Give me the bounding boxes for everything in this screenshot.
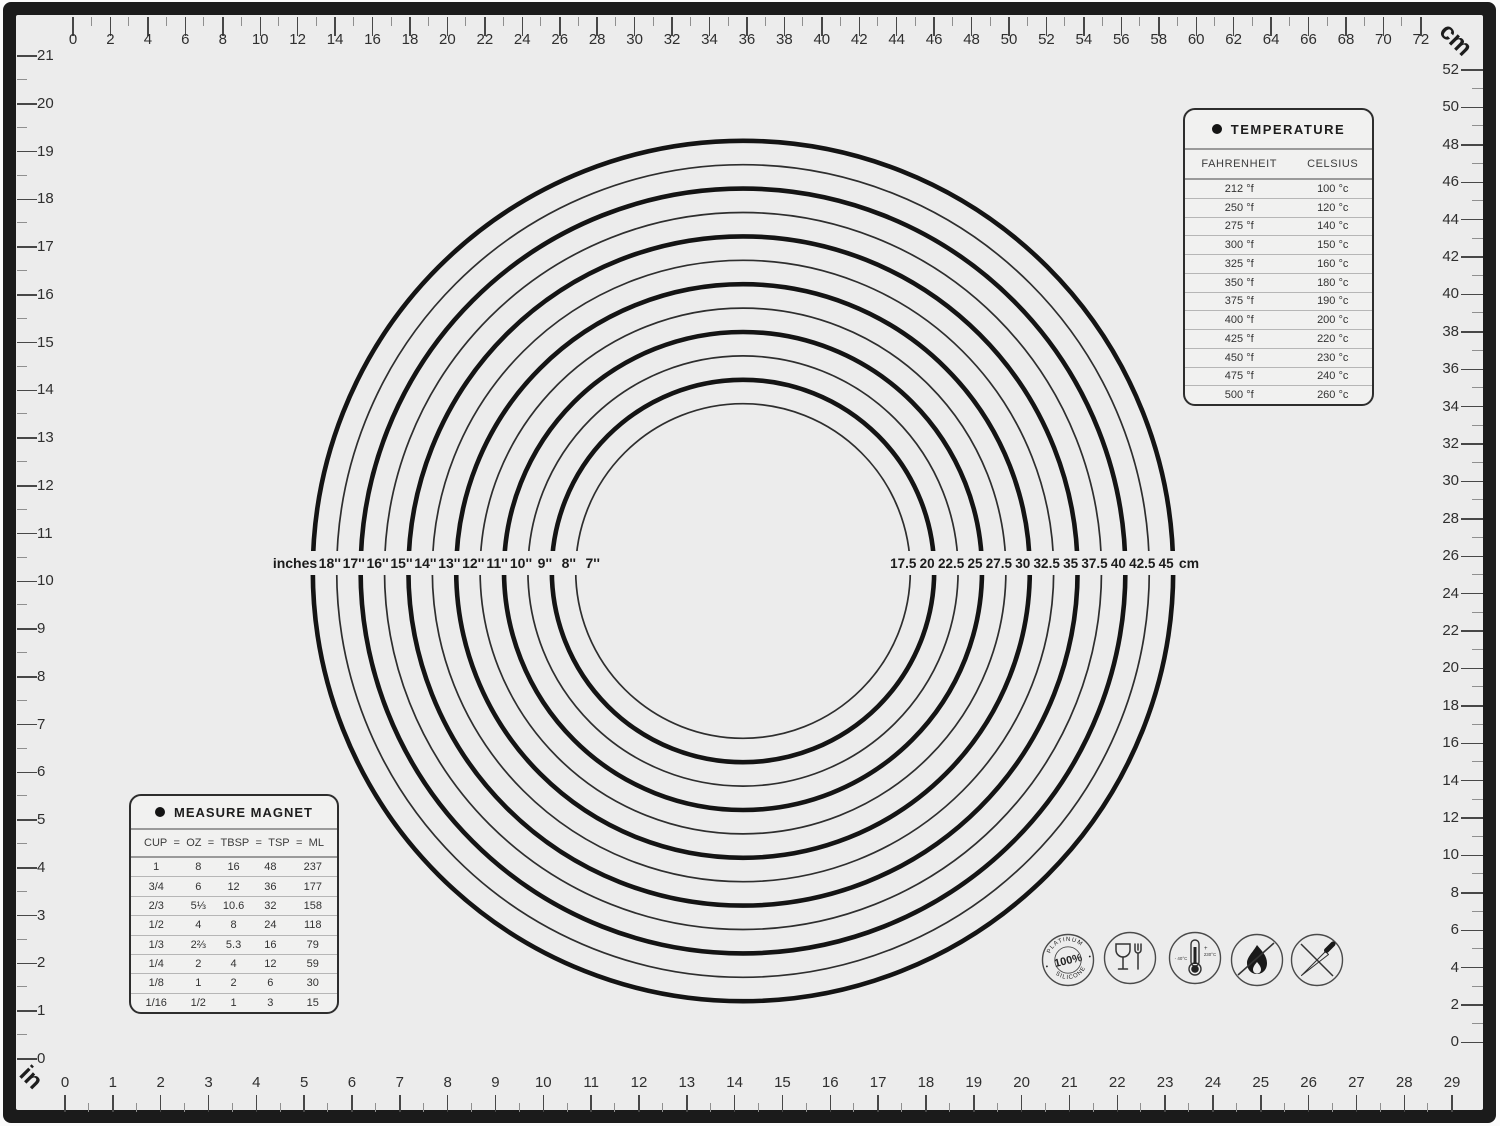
ruler-tick bbox=[17, 294, 37, 296]
ruler-tick-label: 7 bbox=[37, 716, 45, 733]
ruler-tick bbox=[17, 318, 27, 319]
ruler-tick bbox=[1472, 425, 1483, 426]
table-cell: 10.6 bbox=[215, 900, 252, 912]
ruler-tick bbox=[997, 1103, 998, 1112]
ruler-tick bbox=[17, 1058, 37, 1060]
table-cell: 12 bbox=[252, 958, 288, 970]
ruler-tick-label: 48 bbox=[1423, 136, 1459, 153]
ruler-tick bbox=[686, 1095, 688, 1112]
ruler-tick-label: 18 bbox=[918, 1074, 935, 1091]
ring-inch-label: 8'' bbox=[562, 555, 576, 571]
table-cell: 2 bbox=[215, 977, 252, 989]
ruler-tick-label: 72 bbox=[1412, 31, 1429, 48]
ruler-tick-label: 26 bbox=[1300, 1074, 1317, 1091]
ruler-tick-label: 42 bbox=[1423, 248, 1459, 265]
ruler-tick bbox=[614, 1103, 615, 1112]
ruler-tick-label: 28 bbox=[589, 31, 606, 48]
ring-cm-label: 32.5 bbox=[1034, 556, 1061, 571]
ruler-tick bbox=[17, 867, 37, 869]
ruler-tick-label: 22 bbox=[1109, 1074, 1126, 1091]
ruler-tick bbox=[17, 724, 37, 726]
ruler-tick-label: 23 bbox=[1157, 1074, 1174, 1091]
ruler-tick bbox=[1472, 1023, 1483, 1024]
ruler-tick-label: 9 bbox=[37, 620, 45, 637]
ring-inch-label: 11'' bbox=[486, 555, 507, 571]
ruler-tick bbox=[1427, 1103, 1428, 1112]
ruler-tick-label: 20 bbox=[439, 31, 456, 48]
table-cell: 150 °c bbox=[1293, 239, 1372, 251]
ruler-tick bbox=[351, 1095, 353, 1112]
ruler-tick bbox=[17, 843, 27, 844]
ruler-tick-label: 8 bbox=[37, 668, 45, 685]
ruler-tick bbox=[734, 1095, 736, 1112]
ruler-tick bbox=[1472, 163, 1483, 164]
ruler-tick bbox=[17, 891, 27, 892]
ruler-tick bbox=[1472, 387, 1483, 388]
ruler-tick bbox=[1461, 1004, 1483, 1006]
ruler-tick bbox=[1461, 1042, 1483, 1044]
table-cell: 2 bbox=[181, 958, 215, 970]
ruler-tick-label: 2 bbox=[1423, 996, 1459, 1013]
ruler-tick bbox=[1177, 17, 1178, 26]
ring-axis-label-inches: inches bbox=[273, 555, 318, 571]
ruler-tick bbox=[540, 17, 541, 26]
bullet-icon bbox=[155, 807, 165, 817]
ruler-tick-label: 8 bbox=[1423, 884, 1459, 901]
ruler-tick bbox=[160, 1095, 162, 1112]
ruler-tick-label: 21 bbox=[37, 47, 54, 64]
table-row: 300 °f150 °c bbox=[1185, 235, 1372, 254]
ruler-tick bbox=[17, 652, 27, 653]
table-cell: 2⅔ bbox=[181, 939, 215, 951]
ruler-tick bbox=[653, 17, 654, 26]
ruler-tick bbox=[1260, 1095, 1262, 1112]
ruler-tick bbox=[17, 199, 37, 201]
ruler-tick bbox=[1212, 1095, 1214, 1112]
table-row: 212 °f100 °c bbox=[1185, 180, 1372, 198]
ruler-tick-label: 50 bbox=[1423, 98, 1459, 115]
table-cell: 15 bbox=[289, 997, 337, 1009]
table-cell: 177 bbox=[289, 881, 337, 893]
table-cell: 160 °c bbox=[1293, 258, 1372, 270]
ruler-tick-label: 44 bbox=[888, 31, 905, 48]
table-cell: 1/16 bbox=[131, 997, 181, 1009]
ruler-tick bbox=[1461, 443, 1483, 445]
ruler-tick bbox=[1461, 518, 1483, 520]
ruler-tick-label: 5 bbox=[37, 811, 45, 828]
table-row: 1/4241259 bbox=[131, 954, 337, 973]
ring-cm-label: 40 bbox=[1111, 556, 1126, 571]
table-row: 500 °f260 °c bbox=[1185, 385, 1372, 404]
table-cell: 400 °f bbox=[1185, 314, 1293, 326]
ruler-tick bbox=[1284, 1103, 1285, 1112]
table-cell: 260 °c bbox=[1293, 389, 1372, 401]
ruler-tick-label: 2 bbox=[156, 1074, 164, 1091]
ruler-tick bbox=[1102, 17, 1103, 26]
ruler-tick bbox=[802, 17, 803, 26]
table-cell: 1 bbox=[215, 997, 252, 1009]
table-row: 475 °f240 °c bbox=[1185, 367, 1372, 386]
ruler-tick bbox=[1332, 1103, 1333, 1112]
table-cell: 275 °f bbox=[1185, 220, 1293, 232]
ruler-tick bbox=[578, 17, 579, 26]
ruler-tick bbox=[17, 939, 27, 940]
measure-column-header: CUP bbox=[144, 837, 167, 849]
ruler-tick-label: 15 bbox=[37, 334, 54, 351]
ruler-tick bbox=[17, 270, 27, 271]
table-row: 275 °f140 °c bbox=[1185, 217, 1372, 236]
platinum-silicone-badge-icon: PLATINUM SILICONE 100% bbox=[1040, 932, 1096, 988]
ruler-tick bbox=[615, 17, 616, 26]
celsius-column-header: CELSIUS bbox=[1293, 158, 1372, 170]
ruler-tick bbox=[1451, 1095, 1453, 1112]
ruler-tick-label: 32 bbox=[1423, 435, 1459, 452]
ruler-tick-label: 12 bbox=[37, 477, 54, 494]
table-cell: 118 bbox=[289, 919, 337, 931]
ruler-tick-label: 40 bbox=[1423, 285, 1459, 302]
ruler-tick bbox=[1364, 17, 1365, 26]
ruler-tick bbox=[1472, 312, 1483, 313]
ruler-tick-label: 6 bbox=[348, 1074, 356, 1091]
ruler-tick-label: 10 bbox=[1423, 846, 1459, 863]
ruler-tick-label: 26 bbox=[551, 31, 568, 48]
ruler-tick-label: 7 bbox=[396, 1074, 404, 1091]
ruler-tick bbox=[877, 1095, 879, 1112]
table-cell: 3/4 bbox=[131, 881, 181, 893]
ruler-tick-label: 32 bbox=[664, 31, 681, 48]
ruler-tick-label: 26 bbox=[1423, 547, 1459, 564]
ring-inch-label: 13'' bbox=[438, 555, 460, 571]
ruler-tick-label: 30 bbox=[1423, 472, 1459, 489]
ruler-tick bbox=[1472, 873, 1483, 874]
ring-cm-label: 20 bbox=[920, 556, 935, 571]
ruler-tick bbox=[1461, 294, 1483, 296]
ruler-tick bbox=[184, 1103, 185, 1112]
ruler-tick bbox=[1308, 1095, 1310, 1112]
table-cell: 8 bbox=[181, 861, 215, 873]
ring-inch-label: 18'' bbox=[319, 555, 341, 571]
ruler-tick bbox=[806, 1103, 807, 1112]
ruler-tick-label: 4 bbox=[1423, 959, 1459, 976]
ruler-tick-label: 36 bbox=[1423, 360, 1459, 377]
table-cell: 1/8 bbox=[131, 977, 181, 989]
equals-separator: = bbox=[208, 837, 214, 849]
ruler-tick bbox=[203, 17, 204, 26]
table-cell: 237 bbox=[289, 861, 337, 873]
ruler-tick bbox=[1327, 17, 1328, 26]
table-cell: 24 bbox=[252, 919, 288, 931]
ruler-tick bbox=[208, 1095, 210, 1112]
ruler-tick-label: 8 bbox=[443, 1074, 451, 1091]
ruler-tick bbox=[280, 1103, 281, 1112]
ruler-tick-label: 14 bbox=[1423, 772, 1459, 789]
ruler-tick-label: 9 bbox=[491, 1074, 499, 1091]
ruler-tick bbox=[519, 1103, 520, 1112]
ruler-tick bbox=[17, 1010, 37, 1012]
ruler-tick-label: 28 bbox=[1423, 510, 1459, 527]
ruler-tick-label: 16 bbox=[364, 31, 381, 48]
table-row: 250 °f120 °c bbox=[1185, 198, 1372, 217]
table-cell: 120 °c bbox=[1293, 202, 1372, 214]
ruler-tick-label: 0 bbox=[61, 1074, 69, 1091]
ruler-tick-label: 8 bbox=[219, 31, 227, 48]
table-row: 425 °f220 °c bbox=[1185, 329, 1372, 348]
ruler-tick bbox=[1472, 238, 1483, 239]
ruler-tick bbox=[1139, 17, 1140, 26]
ruler-tick bbox=[303, 1095, 305, 1112]
ruler-tick bbox=[1461, 705, 1483, 707]
bullet-icon bbox=[1212, 124, 1222, 134]
table-row: 2/35⅓10.632158 bbox=[131, 896, 337, 915]
ruler-tick bbox=[136, 1103, 137, 1112]
ring-inch-label: 16'' bbox=[366, 555, 388, 571]
ruler-tick-label: 40 bbox=[813, 31, 830, 48]
ruler-tick bbox=[662, 1103, 663, 1112]
table-cell: 200 °c bbox=[1293, 314, 1372, 326]
ring-inch-label: 15'' bbox=[390, 555, 412, 571]
ruler-tick bbox=[1472, 350, 1483, 351]
ruler-tick-label: 17 bbox=[37, 238, 54, 255]
temp-max-text: 230°C bbox=[1204, 952, 1216, 957]
ring-cm-label: 17.5 bbox=[890, 556, 917, 571]
ruler-tick bbox=[17, 819, 37, 821]
table-row: 375 °f190 °c bbox=[1185, 292, 1372, 311]
ruler-tick-label: 14 bbox=[37, 381, 54, 398]
ruler-tick bbox=[1027, 17, 1028, 26]
table-cell: 16 bbox=[215, 861, 252, 873]
ruler-tick bbox=[17, 151, 37, 153]
baking-mat: inchescm18''4517''42.516''4015''37.514''… bbox=[0, 0, 1500, 1126]
ruler-tick-label: 38 bbox=[1423, 323, 1459, 340]
temperature-panel-title: TEMPERATURE bbox=[1185, 110, 1372, 150]
ruler-tick-label: 36 bbox=[739, 31, 756, 48]
ruler-tick bbox=[1461, 69, 1483, 71]
ruler-tick bbox=[590, 1095, 592, 1112]
ruler-tick-label: 3 bbox=[204, 1074, 212, 1091]
table-cell: 8 bbox=[215, 919, 252, 931]
ruler-tick bbox=[1472, 462, 1483, 463]
ring-cm-label: 22.5 bbox=[938, 556, 965, 571]
ruler-tick bbox=[1472, 686, 1483, 687]
ruler-tick bbox=[17, 533, 37, 535]
ruler-tick bbox=[327, 1103, 328, 1112]
ruler-tick-label: 54 bbox=[1076, 31, 1093, 48]
ruler-tick-label: 48 bbox=[963, 31, 980, 48]
ruler-tick bbox=[853, 1103, 854, 1112]
ring-inch-label: 17'' bbox=[343, 555, 365, 571]
ruler-tick bbox=[17, 366, 27, 367]
ruler-tick bbox=[465, 17, 466, 26]
ruler-tick-label: 5 bbox=[300, 1074, 308, 1091]
table-cell: 1 bbox=[131, 861, 181, 873]
ring-axis-label-cm: cm bbox=[1179, 555, 1199, 571]
ruler-tick bbox=[17, 55, 37, 57]
ruler-tick-label: 18 bbox=[402, 31, 419, 48]
ruler-tick bbox=[1472, 948, 1483, 949]
ruler-tick-label: 16 bbox=[37, 286, 54, 303]
ring-inch-label: 14'' bbox=[414, 555, 436, 571]
table-cell: 36 bbox=[252, 881, 288, 893]
ruler-tick-label: 34 bbox=[1423, 398, 1459, 415]
ring-cm-label: 27.5 bbox=[986, 556, 1013, 571]
ruler-tick bbox=[1164, 1095, 1166, 1112]
table-row: 350 °f180 °c bbox=[1185, 273, 1372, 292]
table-cell: 212 °f bbox=[1185, 183, 1293, 195]
ruler-tick bbox=[1356, 1095, 1358, 1112]
table-cell: 220 °c bbox=[1293, 333, 1372, 345]
ruler-tick bbox=[166, 17, 167, 26]
ruler-tick-label: 4 bbox=[37, 859, 45, 876]
ruler-tick bbox=[1461, 855, 1483, 857]
ruler-tick bbox=[17, 772, 37, 774]
ruler-tick bbox=[1472, 986, 1483, 987]
ruler-tick-label: 64 bbox=[1263, 31, 1280, 48]
ruler-tick bbox=[567, 1103, 568, 1112]
table-row: 1/161/21315 bbox=[131, 993, 337, 1012]
equals-separator: = bbox=[174, 837, 180, 849]
equals-separator: = bbox=[256, 837, 262, 849]
ruler-tick-label: 14 bbox=[327, 31, 344, 48]
ruler-tick-label: 20 bbox=[37, 95, 54, 112]
ruler-tick bbox=[1461, 369, 1483, 371]
ruler-tick bbox=[543, 1095, 545, 1112]
ring-inch-label: 10'' bbox=[510, 555, 532, 571]
ruler-tick-label: 6 bbox=[181, 31, 189, 48]
ruler-tick-label: 24 bbox=[1423, 585, 1459, 602]
ruler-tick-label: 12 bbox=[631, 1074, 648, 1091]
ruler-tick bbox=[1472, 88, 1483, 89]
table-cell: 4 bbox=[215, 958, 252, 970]
ruler-tick bbox=[1461, 743, 1483, 745]
equals-separator: = bbox=[296, 837, 302, 849]
table-cell: 240 °c bbox=[1293, 370, 1372, 382]
ruler-tick-label: 70 bbox=[1375, 31, 1392, 48]
ruler-tick-label: 27 bbox=[1348, 1074, 1365, 1091]
ruler-tick bbox=[710, 1103, 711, 1112]
ruler-tick bbox=[17, 628, 37, 630]
ruler-tick-label: 13 bbox=[37, 429, 54, 446]
ruler-tick bbox=[1472, 836, 1483, 837]
ruler-tick bbox=[1461, 182, 1483, 184]
ruler-tick-label: 15 bbox=[774, 1074, 791, 1091]
ruler-tick bbox=[316, 17, 317, 26]
temperature-header: FAHRENHEIT CELSIUS bbox=[1185, 150, 1372, 180]
ruler-tick bbox=[17, 79, 27, 80]
measure-column-header: TBSP bbox=[221, 837, 250, 849]
ruler-tick bbox=[1461, 668, 1483, 670]
ruler-tick-label: 12 bbox=[289, 31, 306, 48]
ruler-tick bbox=[1461, 967, 1483, 969]
ruler-tick bbox=[399, 1095, 401, 1112]
ruler-tick-label: 12 bbox=[1423, 809, 1459, 826]
ruler-tick-label: 13 bbox=[678, 1074, 695, 1091]
ruler-tick-label: 11 bbox=[583, 1074, 599, 1091]
table-cell: 100 °c bbox=[1293, 183, 1372, 195]
ruler-tick bbox=[1472, 574, 1483, 575]
ruler-tick bbox=[256, 1095, 258, 1112]
table-cell: 5⅓ bbox=[181, 900, 215, 912]
ruler-tick-label: 20 bbox=[1013, 1074, 1030, 1091]
ruler-tick bbox=[375, 1103, 376, 1112]
table-row: 325 °f160 °c bbox=[1185, 254, 1372, 273]
ruler-tick-label: 22 bbox=[1423, 622, 1459, 639]
ruler-tick bbox=[1236, 1103, 1237, 1112]
ruler-tick-label: 19 bbox=[37, 143, 54, 160]
ruler-tick-label: 0 bbox=[69, 31, 77, 48]
table-cell: 3 bbox=[252, 997, 288, 1009]
measure-header: CUP=OZ=TBSP=TSP=ML bbox=[131, 830, 337, 858]
ruler-tick bbox=[112, 1095, 114, 1112]
ring-inch-label: 12'' bbox=[462, 555, 484, 571]
table-row: 3/461236177 bbox=[131, 876, 337, 895]
ruler-tick bbox=[1461, 144, 1483, 146]
ruler-tick bbox=[1461, 630, 1483, 632]
table-cell: 1/2 bbox=[131, 919, 181, 931]
measure-column-header: ML bbox=[309, 837, 324, 849]
ruler-tick bbox=[17, 175, 27, 176]
ruler-tick-label: 10 bbox=[535, 1074, 552, 1091]
ruler-tick bbox=[782, 1095, 784, 1112]
ruler-tick bbox=[1069, 1095, 1071, 1112]
ruler-tick bbox=[471, 1103, 472, 1112]
ruler-tick-label: 4 bbox=[144, 31, 152, 48]
ruler-tick-label: 17 bbox=[870, 1074, 887, 1091]
measure-rows: 1816482373/4612361772/35⅓10.6321581/2482… bbox=[131, 858, 337, 1012]
ruler-tick bbox=[1472, 649, 1483, 650]
ruler-tick-label: 60 bbox=[1188, 31, 1205, 48]
ruler-tick bbox=[17, 437, 37, 439]
ruler-tick bbox=[17, 103, 37, 105]
table-cell: 30 bbox=[289, 977, 337, 989]
ruler-tick-label: 1 bbox=[109, 1074, 117, 1091]
ruler-tick-label: 66 bbox=[1300, 31, 1317, 48]
table-cell: 375 °f bbox=[1185, 295, 1293, 307]
table-cell: 6 bbox=[181, 881, 215, 893]
table-cell: 2/3 bbox=[131, 900, 181, 912]
ruler-tick bbox=[1064, 17, 1065, 26]
food-safe-icon bbox=[1102, 930, 1158, 986]
table-cell: 140 °c bbox=[1293, 220, 1372, 232]
ruler-tick bbox=[1472, 275, 1483, 276]
table-cell: 250 °f bbox=[1185, 202, 1293, 214]
ruler-tick bbox=[1252, 17, 1253, 26]
ruler-tick-label: 34 bbox=[701, 31, 718, 48]
ruler-tick bbox=[925, 1095, 927, 1112]
table-row: 450 °f230 °c bbox=[1185, 348, 1372, 367]
ruler-tick-label: 62 bbox=[1225, 31, 1242, 48]
ruler-tick-label: 0 bbox=[1423, 1033, 1459, 1050]
ruler-tick bbox=[1461, 107, 1483, 109]
table-row: 400 °f200 °c bbox=[1185, 310, 1372, 329]
table-cell: 1/4 bbox=[131, 958, 181, 970]
table-cell: 5.3 bbox=[215, 939, 252, 951]
ruler-tick-label: 21 bbox=[1061, 1074, 1078, 1091]
ruler-tick bbox=[17, 461, 27, 462]
ruler-tick bbox=[1472, 125, 1483, 126]
ruler-tick bbox=[765, 17, 766, 26]
ruler-tick bbox=[1472, 537, 1483, 538]
ruler-tick bbox=[949, 1103, 950, 1112]
ruler-tick bbox=[353, 17, 354, 26]
ruler-tick-label: 11 bbox=[37, 525, 53, 542]
ruler-tick bbox=[17, 342, 37, 344]
ruler-tick-label: 46 bbox=[1423, 173, 1459, 190]
ruler-tick-label: 1 bbox=[37, 1002, 45, 1019]
table-row: 1/24824118 bbox=[131, 915, 337, 934]
ring-inch-label: 9'' bbox=[538, 555, 552, 571]
table-cell: 475 °f bbox=[1185, 370, 1293, 382]
table-cell: 500 °f bbox=[1185, 389, 1293, 401]
